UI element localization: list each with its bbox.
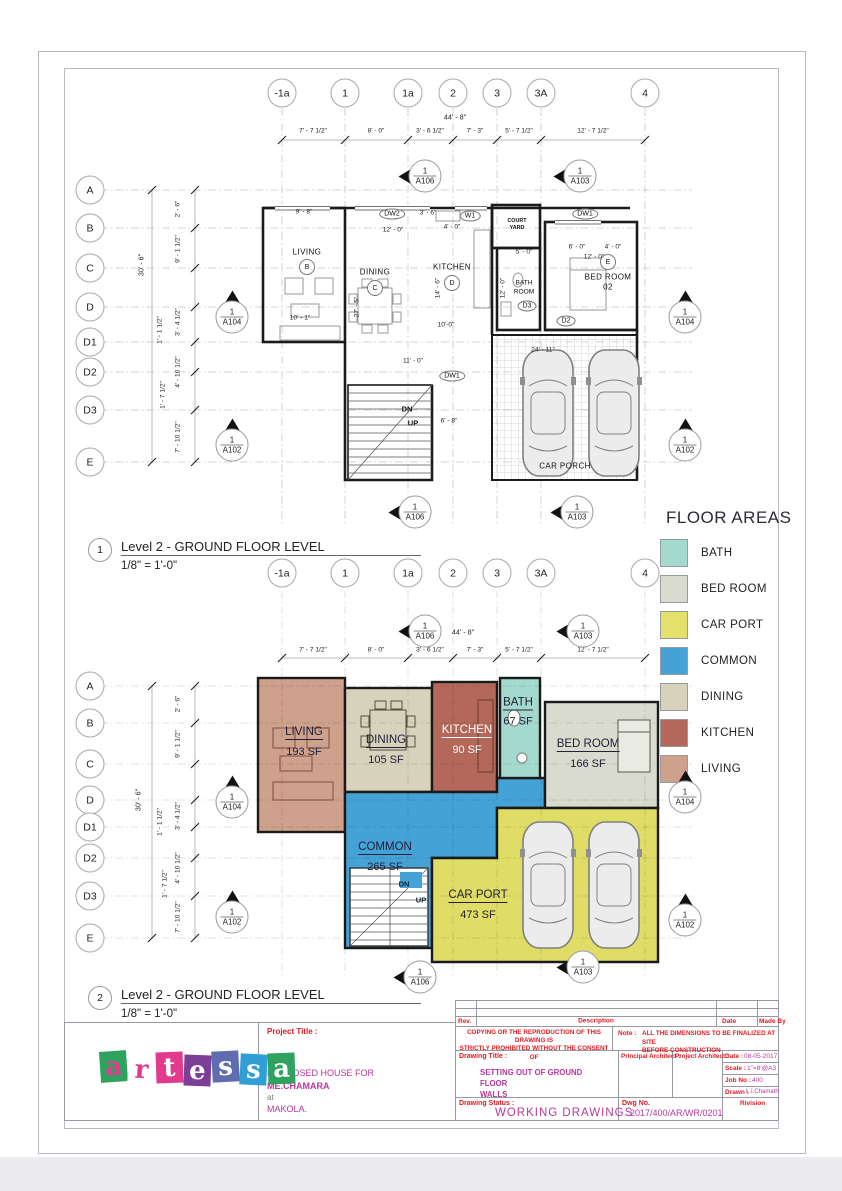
drawing-status-label: Drawing Status : [459,1100,514,1107]
grid-col-bubble: 2 [439,79,468,108]
dim: 3' - 4 1/2" [175,308,182,336]
room-label-bedroom: 02 [603,283,613,292]
project-architect-label: Project Architect : [675,1053,729,1060]
legend-item: CAR PORT [660,611,763,639]
legend-item: BED ROOM [660,575,767,603]
note-text: ALL THE DIMENSIONS TO BE FINALIZED AT SI… [642,1030,776,1056]
grid-row-bubble: B [76,709,105,738]
dim: 7' - 7 1/2" [299,128,327,135]
grid-row-label: D1 [83,821,96,833]
grid-row-bubble: D1 [76,813,105,842]
note-label: Note : [618,1030,636,1037]
section-marker-a103: 1A103 [557,615,600,648]
marker-no: 1 [683,910,687,919]
logo-letter: a [267,1053,295,1085]
dim: 4' - 10 1/2" [175,356,182,387]
dim: 1' - 7 1/2" [162,870,169,898]
date-value: 08-05-2017 [744,1053,777,1060]
section-marker-a102: 1A102 [216,891,249,934]
titleblock-madeby-header: Made By [759,1018,786,1025]
marker-sheet: A102 [221,445,244,455]
section-marker-a106: 1A106 [399,615,442,648]
legend-label: BATH [701,547,732,559]
grid-row-bubble: D2 [76,844,105,873]
grid-col-label: 4 [642,567,648,579]
room-label-bedroom: BED ROOM [585,273,632,282]
dim: 24' - 11" [531,347,555,354]
room-tag-bedroom: E [600,254,616,270]
room-label-courtyard: YARD [510,225,525,231]
job-no-value: 400 [752,1077,763,1084]
section-marker-a102-right: 1A102 [669,419,702,462]
door-tag-d2: D2 [557,316,576,327]
section-marker-a104-right: 1A104 [669,771,702,814]
legend-label: BED ROOM [701,583,767,595]
dim: 11' - 0" [403,358,423,365]
logo-letter: e [183,1055,211,1087]
scale-label: Scale : [725,1065,746,1072]
grid-row-label: E [86,456,93,468]
plan1-scale: 1/8" = 1'-0" [121,560,177,572]
grid-col-bubble: 3 [483,559,512,588]
plan-number: 1 [97,544,103,556]
section-marker-a106: 1A106 [399,160,442,193]
grid-col-bubble: 4 [631,559,660,588]
plan1-title-bubble: 1 [88,538,112,562]
dim: 9' - 1 1/2" [175,235,182,263]
door-tag-d3: D3 [518,301,537,312]
room-tag-living: B [299,259,315,275]
area-room-sf: 265 SF [358,861,412,873]
dim: 4' - 0" [444,224,461,231]
marker-no: 1 [413,502,417,511]
plan1-title-text: Level 2 - GROUND FLOOR LEVEL [121,539,421,556]
dim: 7' - 3" [467,647,484,654]
room-label-kitchen: KITCHEN [433,263,471,272]
grid-col-label: 2 [450,567,456,579]
grid-row-label: D2 [83,366,96,378]
area-label-bedroom: BED ROOM166 SF [557,738,620,770]
grid-row-label: B [86,717,93,729]
area-room-name: BATH [503,697,533,711]
grid-row-label: D [86,794,94,806]
drawing-title-line2: WALLS [480,1090,507,1099]
door-tag-text: DW1 [577,211,593,218]
marker-no: 1 [423,166,427,175]
dim: 7' - 10 1/2" [175,421,182,452]
marker-no: 1 [581,957,585,966]
logo-letter: s [211,1050,240,1082]
dim: 12' - 0" [383,227,403,234]
stairs-dn-label: DN [402,405,413,414]
legend-label: LIVING [701,763,741,775]
marker-sheet: A106 [414,631,437,641]
area-room-sf: 90 SF [442,744,492,756]
dim: 3' - 6 1/2" [416,647,444,654]
warning-line1: COPYING OR THE REPRODUCTION OF THIS DRAW… [467,1029,601,1044]
grid-col-label: 3A [535,567,548,579]
area-room-sf: 166 SF [557,758,620,770]
grid-row-label: A [86,680,93,692]
plan-number: 2 [97,992,103,1004]
door-tag-text: D3 [523,303,532,310]
section-marker-a106-bottom: 1A106 [389,496,432,529]
grid-row-bubble: D [76,293,105,322]
grid-row-bubble: E [76,448,105,477]
section-marker-a103-bottom: 1A103 [551,496,594,529]
room-label-carporch: CAR PORCH [539,462,591,471]
logo-letter: a [99,1050,128,1083]
grid-row-bubble: D1 [76,328,105,357]
legend-item: COMMON [660,647,757,675]
dim: 4' - 10 1/2" [175,852,182,883]
room-tag-dining: C [367,280,383,296]
area-label-dining: DINING105 SF [366,734,406,766]
legend-swatch-kitchen [660,719,688,747]
grid-row-label: D2 [83,852,96,864]
area-room-name: BED ROOM [557,738,620,752]
grid-col-label: 4 [642,87,648,99]
drawing-sheet: -1a 1 1a 2 3 3A 4 A B C D D1 D2 D3 E 44'… [0,0,842,1191]
window-tag-text: W1 [465,213,476,220]
room-tag-text: B [305,264,310,271]
door-tag-dw1: DW1 [572,209,598,220]
legend-swatch-bath [660,539,688,567]
door-tag-dw1b: DW1 [439,371,465,382]
area-label-kitchen: KITCHEN90 SF [442,724,492,756]
dim: 3' - 6 1/2" [416,128,444,135]
dim: 6' - 8" [441,418,458,425]
dim: 3' - 4 1/2" [175,802,182,830]
door-tag-dw2: DW2 [379,209,405,220]
titleblock-date-header: Date [722,1018,736,1025]
legend-swatch-bedroom [660,575,688,603]
dim: 7' - 10 1/2" [175,901,182,932]
dim: 10'-0" [438,322,455,329]
dim: 6' - 0" [569,244,586,251]
legend-swatch-common [660,647,688,675]
grid-row-label: C [86,262,94,274]
marker-no: 1 [418,967,422,976]
section-marker-a104: 1A104 [216,776,249,819]
legend-title: FLOOR AREAS [666,508,791,528]
revision-label: Rivision [740,1100,765,1107]
grid-row-label: E [86,932,93,944]
room-label-dining: DINING [360,268,390,277]
dim: 12' - 7 1/2" [577,647,608,654]
dim: 5' - 0" [516,249,533,256]
project-line3: at [267,1093,274,1102]
grid-col-bubble: 3A [527,559,556,588]
note-line1: ALL THE DIMENSIONS TO BE FINALIZED AT SI… [642,1030,775,1046]
drawing-title-value: SETTING OUT OF GROUND FLOORWALLS [480,1068,605,1101]
plan2-title-text: Level 2 - GROUND FLOOR LEVEL [121,987,421,1004]
legend-label: CAR PORT [701,619,763,631]
plan1-title: 1 Level 2 - GROUND FLOOR LEVEL1/8" = 1'-… [88,538,421,574]
area-room-name: LIVING [285,726,323,740]
scale-value: 1"=8'@A3 [747,1065,776,1072]
grid-row-bubble: D3 [76,882,105,911]
titleblock-rev-header: Rev. [458,1018,471,1025]
marker-sheet: A104 [674,797,697,807]
dwg-no-value: 2017/400/AR/WR/0201 [630,1108,723,1118]
plan1-linework [70,80,710,540]
grid-row-bubble: D3 [76,396,105,425]
grid-row-label: D3 [83,404,96,416]
grid-row-label: D [86,301,94,313]
area-room-sf: 473 SF [448,909,507,921]
grid-col-label: 3 [494,567,500,579]
dim: 2' - 6" [175,696,182,713]
legend-item: DINING [660,683,744,711]
grid-row-bubble: B [76,214,105,243]
date-label: Date : [725,1053,743,1060]
legend-label: COMMON [701,655,757,667]
dim: 5' - 7 1/2" [505,647,533,654]
marker-sheet: A104 [221,317,244,327]
dim-total-height: 30' - 6" [134,789,143,811]
grid-col-bubble: 4 [631,79,660,108]
marker-no: 1 [230,907,234,916]
area-room-sf: 193 SF [285,746,323,758]
stairs-dn-label: DN [399,880,410,889]
area-room-name: DINING [366,734,406,748]
logo-letter: t [155,1052,183,1084]
dim: 9' - 1 1/2" [175,730,182,758]
grid-row-label: D1 [83,336,96,348]
sheet-bottom-margin [0,1157,842,1191]
grid-col-label: 3A [535,87,548,99]
project-line4: MAKOLA. [267,1104,307,1114]
marker-no: 1 [683,307,687,316]
marker-sheet: A102 [674,445,697,455]
area-room-sf: 67 SF [503,716,533,728]
dim: 7' - 3" [467,128,484,135]
grid-row-bubble: C [76,750,105,779]
dim: 2' - 6" [175,201,182,218]
marker-sheet: A103 [572,631,595,641]
grid-row-label: A [86,184,93,196]
grid-row-bubble: D [76,786,105,815]
area-label-common: COMMON265 SF [358,841,412,873]
legend-item: BATH [660,539,732,567]
room-label-living: LIVING [293,248,322,257]
grid-row-bubble: E [76,924,105,953]
grid-col-bubble: 3 [483,79,512,108]
area-room-name: COMMON [358,841,412,855]
drawing-title-line1: SETTING OUT OF GROUND FLOOR [480,1068,582,1088]
area-label-carport: CAR PORT473 SF [448,889,507,921]
room-tag-text: E [606,259,611,266]
dim: 12' - 0" [500,278,507,298]
window-tag-w1: W1 [460,211,481,222]
drawing-status-value: WORKING DRAWINGS [495,1107,633,1119]
dim: 5' - 7 1/2" [505,128,533,135]
area-label-living: LIVING193 SF [285,726,323,758]
grid-row-label: C [86,758,94,770]
area-room-name: CAR PORT [448,889,507,903]
area-room-name: KITCHEN [442,724,492,738]
grid-col-bubble: 2 [439,559,468,588]
marker-sheet: A103 [572,967,595,977]
legend-label: KITCHEN [701,727,754,739]
legend-swatch-dining [660,683,688,711]
dim: 10' - 1" [290,315,310,322]
plan2-scale: 1/8" = 1'-0" [121,1008,177,1020]
dim: 7' - 7 1/2" [299,647,327,654]
dim: 1' - 7 1/2" [160,381,167,409]
door-tag-text: D2 [562,318,571,325]
dim: 9' - 8" [296,209,313,216]
marker-no: 1 [230,792,234,801]
grid-row-bubble: D2 [76,358,105,387]
dim-total-width: 44' - 8" [452,628,474,637]
room-label-bathroom: BATH [515,280,532,287]
dim-total-height: 30' - 6" [137,254,146,276]
marker-sheet: A103 [569,176,592,186]
dim: 1' - 1 1/2" [157,808,164,836]
dim: 4' - 0" [605,244,622,251]
grid-col-bubble: 1 [331,79,360,108]
plan2-colored-areas [70,560,710,990]
section-marker-a102: 1A102 [216,419,249,462]
logo-letter: r [127,1053,156,1085]
marker-sheet: A102 [221,917,244,927]
plan2-title-bubble: 2 [88,986,112,1010]
job-no-label: Job No : [725,1077,751,1084]
artessa-logo: a r t e s s a [100,1053,295,1084]
grid-col-label: 3 [494,87,500,99]
door-tag-text: DW1 [444,373,460,380]
grid-row-bubble: A [76,672,105,701]
legend-label: DINING [701,691,744,703]
section-marker-a103: 1A103 [554,160,597,193]
marker-no: 1 [578,166,582,175]
dim: 8' - 0" [368,128,385,135]
grid-col-label: 1a [402,87,414,99]
marker-sheet: A103 [566,512,589,522]
grid-col-bubble: -1a [268,79,297,108]
grid-col-bubble: 3A [527,79,556,108]
dim: 12' - 7 1/2" [577,128,608,135]
logo-letter: s [239,1053,268,1085]
grid-row-label: D3 [83,890,96,902]
marker-no: 1 [423,621,427,630]
area-room-sf: 105 SF [366,754,406,766]
marker-sheet: A104 [221,802,244,812]
marker-sheet: A106 [414,176,437,186]
plan2-title: 2 Level 2 - GROUND FLOOR LEVEL1/8" = 1'-… [88,986,421,1022]
marker-no: 1 [230,307,234,316]
marker-sheet: A106 [404,512,427,522]
grid-col-label: 2 [450,87,456,99]
dim: 14' - 6" [435,278,442,298]
dim: 3' - 6" [420,210,437,217]
room-label-courtyard: COURT [507,218,526,224]
room-tag-text: D [449,280,454,287]
marker-no: 1 [575,502,579,511]
section-marker-a102-right: 1A102 [669,894,702,937]
room-label-bathroom: ROOM [514,289,535,296]
dim-total-width: 44' - 8" [444,113,466,122]
grid-col-label: -1a [274,87,289,99]
drawn-value: L.I.Chamath [746,1089,779,1095]
area-label-bath: BATH67 SF [503,697,533,728]
section-marker-a104: 1A104 [216,291,249,334]
marker-sheet: A104 [674,317,697,327]
stairs-up-label: UP [408,419,418,428]
marker-sheet: A102 [674,920,697,930]
grid-col-label: 1 [342,87,348,99]
marker-no: 1 [581,621,585,630]
project-title-label: Project Title : [267,1027,318,1036]
grid-row-label: B [86,222,93,234]
drawing-title-label: Drawing Title : [459,1053,507,1060]
door-tag-text: DW2 [384,211,400,218]
marker-no: 1 [230,435,234,444]
section-marker-a103-bottom: 1A103 [557,951,600,984]
grid-row-bubble: A [76,176,105,205]
dwg-no-label: Dwg No. [622,1100,650,1107]
marker-no: 1 [683,787,687,796]
marker-no: 1 [683,435,687,444]
room-tag-kitchen: D [444,275,460,291]
grid-row-bubble: C [76,254,105,283]
titleblock-description-header: Description [578,1018,614,1025]
legend-swatch-carport [660,611,688,639]
stairs-up-label: UP [416,896,426,905]
room-tag-text: C [372,285,377,292]
legend-item: KITCHEN [660,719,754,747]
dim: 27' - 5" [354,297,361,317]
dim: 1' - 1 1/2" [157,316,164,344]
principal-architect-label: Principal Architect : [621,1053,680,1060]
grid-col-bubble: 1a [394,79,423,108]
dim: 8' - 0" [368,647,385,654]
section-marker-a104-right: 1A104 [669,291,702,334]
